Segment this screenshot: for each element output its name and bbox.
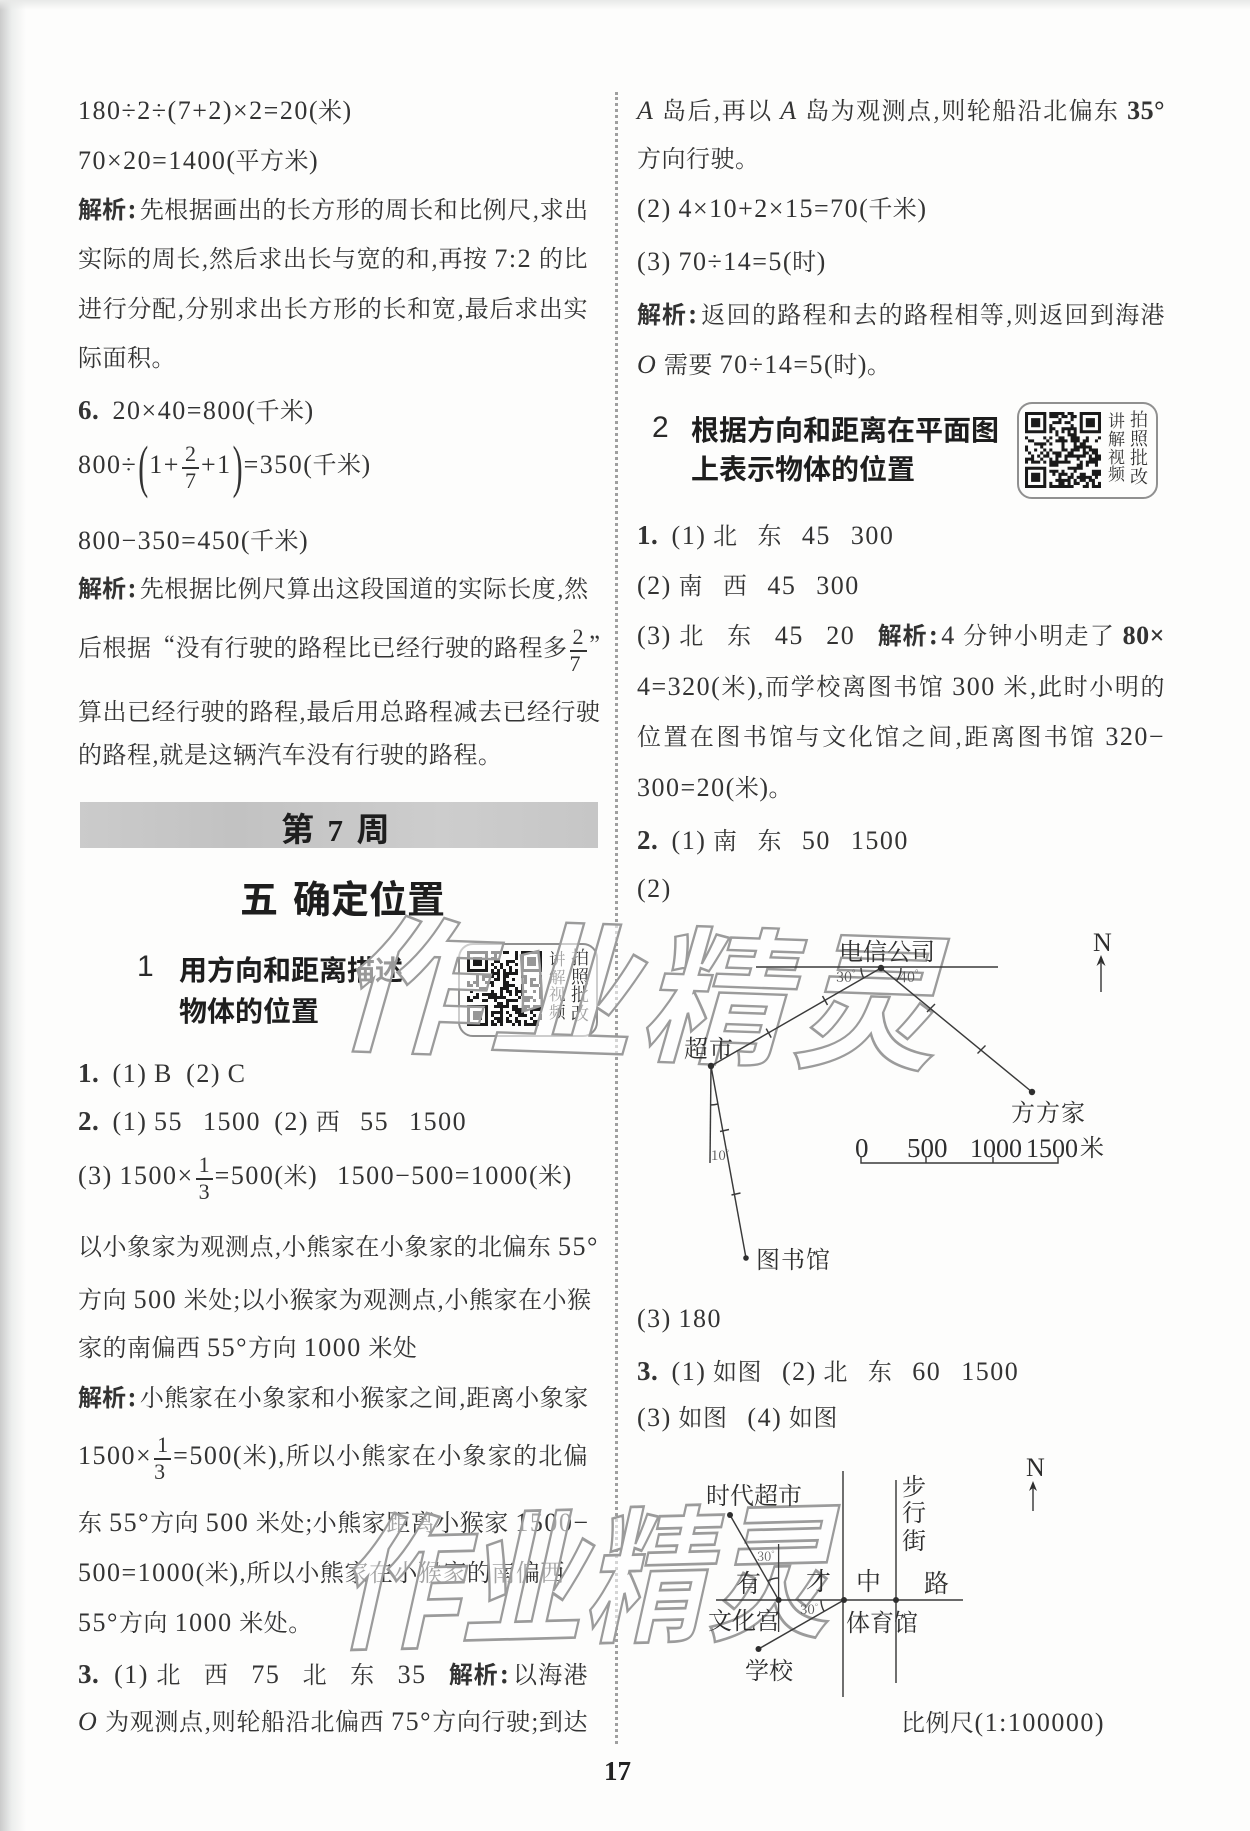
svg-text:体育馆: 体育馆 <box>846 1603 918 1638</box>
svg-text:有: 有 <box>736 1564 761 1600</box>
svg-text:1500: 1500 <box>1026 1134 1078 1163</box>
svg-text:10°: 10° <box>711 1144 729 1164</box>
svg-text:500: 500 <box>907 1133 948 1163</box>
svg-text:学校: 学校 <box>745 1651 794 1686</box>
svg-text:文化宫: 文化宫 <box>708 1601 780 1636</box>
svg-text:40°: 40° <box>899 965 919 987</box>
svg-text:中: 中 <box>856 1562 881 1598</box>
svg-text:图书馆: 图书馆 <box>756 1240 831 1275</box>
svg-text:N: N <box>1093 928 1112 957</box>
svg-text:方方家: 方方家 <box>1011 1093 1086 1128</box>
svg-text:N: N <box>1026 1453 1045 1482</box>
svg-text:时代超市: 时代超市 <box>706 1476 802 1511</box>
svg-text:1000: 1000 <box>970 1134 1022 1163</box>
svg-text:路: 路 <box>924 1564 949 1600</box>
svg-text:米: 米 <box>1080 1128 1104 1163</box>
svg-text:0: 0 <box>855 1133 869 1163</box>
svg-text:30°: 30° <box>757 1546 774 1565</box>
svg-text:电信公司: 电信公司 <box>839 932 935 967</box>
svg-text:超市: 超市 <box>684 1029 734 1064</box>
svg-text:才: 才 <box>806 1562 831 1598</box>
svg-text:街: 街 <box>902 1521 926 1556</box>
svg-text:30°: 30° <box>800 1598 818 1618</box>
